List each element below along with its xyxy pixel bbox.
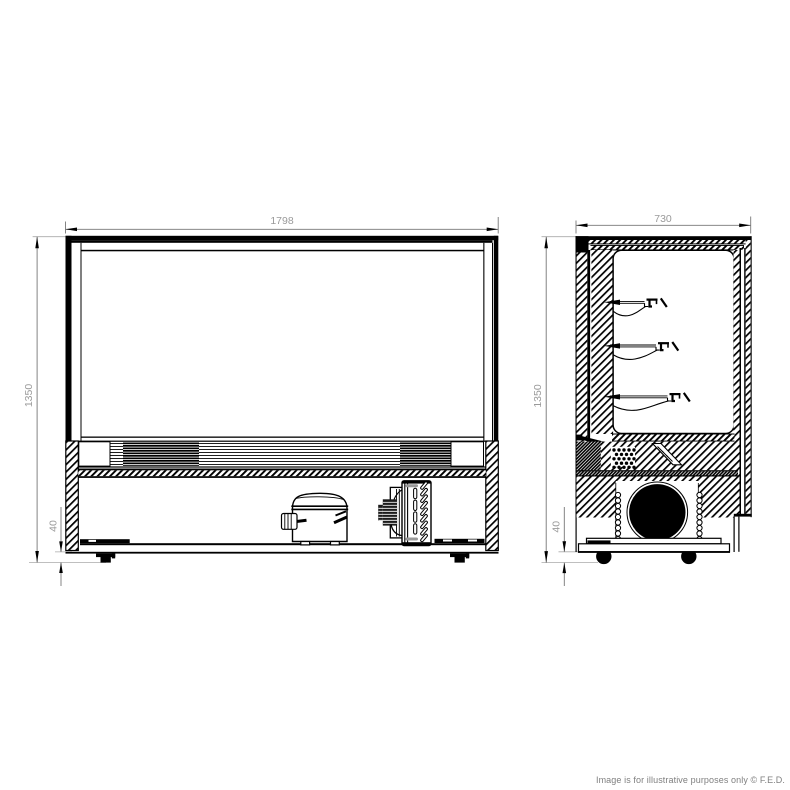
svg-text:730: 730: [654, 213, 672, 225]
svg-text:1350: 1350: [23, 384, 35, 408]
svg-text:Image is for illustrative purp: Image is for illustrative purposes only …: [596, 775, 785, 785]
svg-text:40: 40: [47, 520, 59, 532]
svg-text:1798: 1798: [270, 215, 294, 227]
svg-text:40: 40: [551, 521, 563, 533]
svg-text:1350: 1350: [532, 384, 544, 408]
